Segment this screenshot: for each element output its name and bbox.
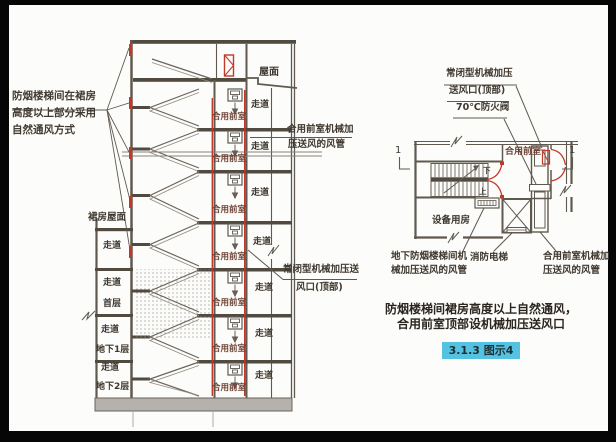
- fire-damper-icon: [530, 185, 551, 192]
- corridor-label: 走道: [255, 372, 273, 382]
- shared-lobby-label: 合用前室: [212, 155, 246, 164]
- podium-roof-label: 裙房屋面: [88, 213, 126, 223]
- figure-caption: 防烟楼梯间裙房高度以上自然通风， 合用前室顶部设机械加压送风口: [378, 302, 584, 332]
- corridor-label: 走道: [251, 101, 269, 111]
- corridor-label: 走道: [103, 242, 121, 252]
- section-marker-label: 1: [395, 145, 401, 156]
- plan-lobby-duct-label: 合用前室机械加: [543, 252, 610, 262]
- roof-door-icon: [225, 55, 234, 76]
- figure-number-badge: 3.1.3 图示4: [442, 342, 520, 359]
- corridor-label: 走道: [253, 238, 271, 248]
- section-marker-label: 1: [569, 145, 575, 156]
- corridor-label: 走道: [103, 279, 121, 289]
- shared-lobby-label: 合用前室: [212, 299, 246, 308]
- equipment-room-label: 设备用房: [432, 216, 470, 226]
- first-floor-label: 首层: [103, 300, 121, 310]
- fire-elevator-icon: [503, 199, 532, 233]
- basement1-label: 地下1层: [96, 346, 129, 356]
- corridor-label: 走道: [101, 326, 119, 336]
- section-marker-left: [400, 157, 411, 169]
- plan-annotation: 70℃防火阀: [456, 103, 509, 113]
- shared-lobby-label: 合用前室: [212, 384, 246, 393]
- basement-duct-label: 械加压送风的风管: [391, 266, 467, 276]
- shared-lobby-label: 合用前室: [212, 345, 246, 354]
- lobby-duct-label: 合用前室机械加: [287, 125, 354, 135]
- figure-page: 防烟楼梯间在裙房 高度以上部分采用 自然通风方式 屋面 裙房屋面 走道 走道 走…: [0, 0, 616, 442]
- shared-lobby-label: 合用前室: [212, 253, 246, 262]
- shared-lobby-label: 合用前室: [212, 113, 246, 122]
- stair-flights: [150, 59, 212, 396]
- shared-lobby-label: 合用前室: [212, 206, 246, 215]
- basement-duct-grille-icon: [475, 198, 499, 208]
- plan-lobby-duct-label: 压送风的风管: [543, 266, 600, 276]
- basement-duct-label: 地下防烟楼梯间机: [391, 252, 467, 262]
- corridor-label: 走道: [101, 364, 119, 374]
- natural-vent-callout: 防烟楼梯间在裙房 高度以上部分采用 自然通风方式: [12, 88, 110, 139]
- roof-label: 屋面: [259, 67, 279, 78]
- shared-lobby-label: 合用前室: [505, 148, 541, 158]
- top-outlet-label: 常闭型机械加压送: [283, 265, 359, 275]
- corridor-label: 走道: [255, 330, 273, 340]
- plan-annotation: 常闭型机械加压: [446, 69, 513, 79]
- corridor-label: 走道: [251, 189, 269, 199]
- corridor-label: 走道: [255, 284, 273, 294]
- lobby-duct-label: 压送风的风管: [288, 140, 345, 150]
- fire-elevator-label: 消防电梯: [470, 253, 508, 263]
- stair-up-label: 上: [479, 186, 487, 197]
- corridor-label: 走道: [251, 143, 269, 153]
- top-outlet-label: 风口(顶部): [296, 283, 343, 293]
- basement2-label: 地下2层: [96, 383, 129, 393]
- stair-down-label: 下: [483, 165, 491, 176]
- plan-annotation: 送风口(顶部): [449, 86, 505, 96]
